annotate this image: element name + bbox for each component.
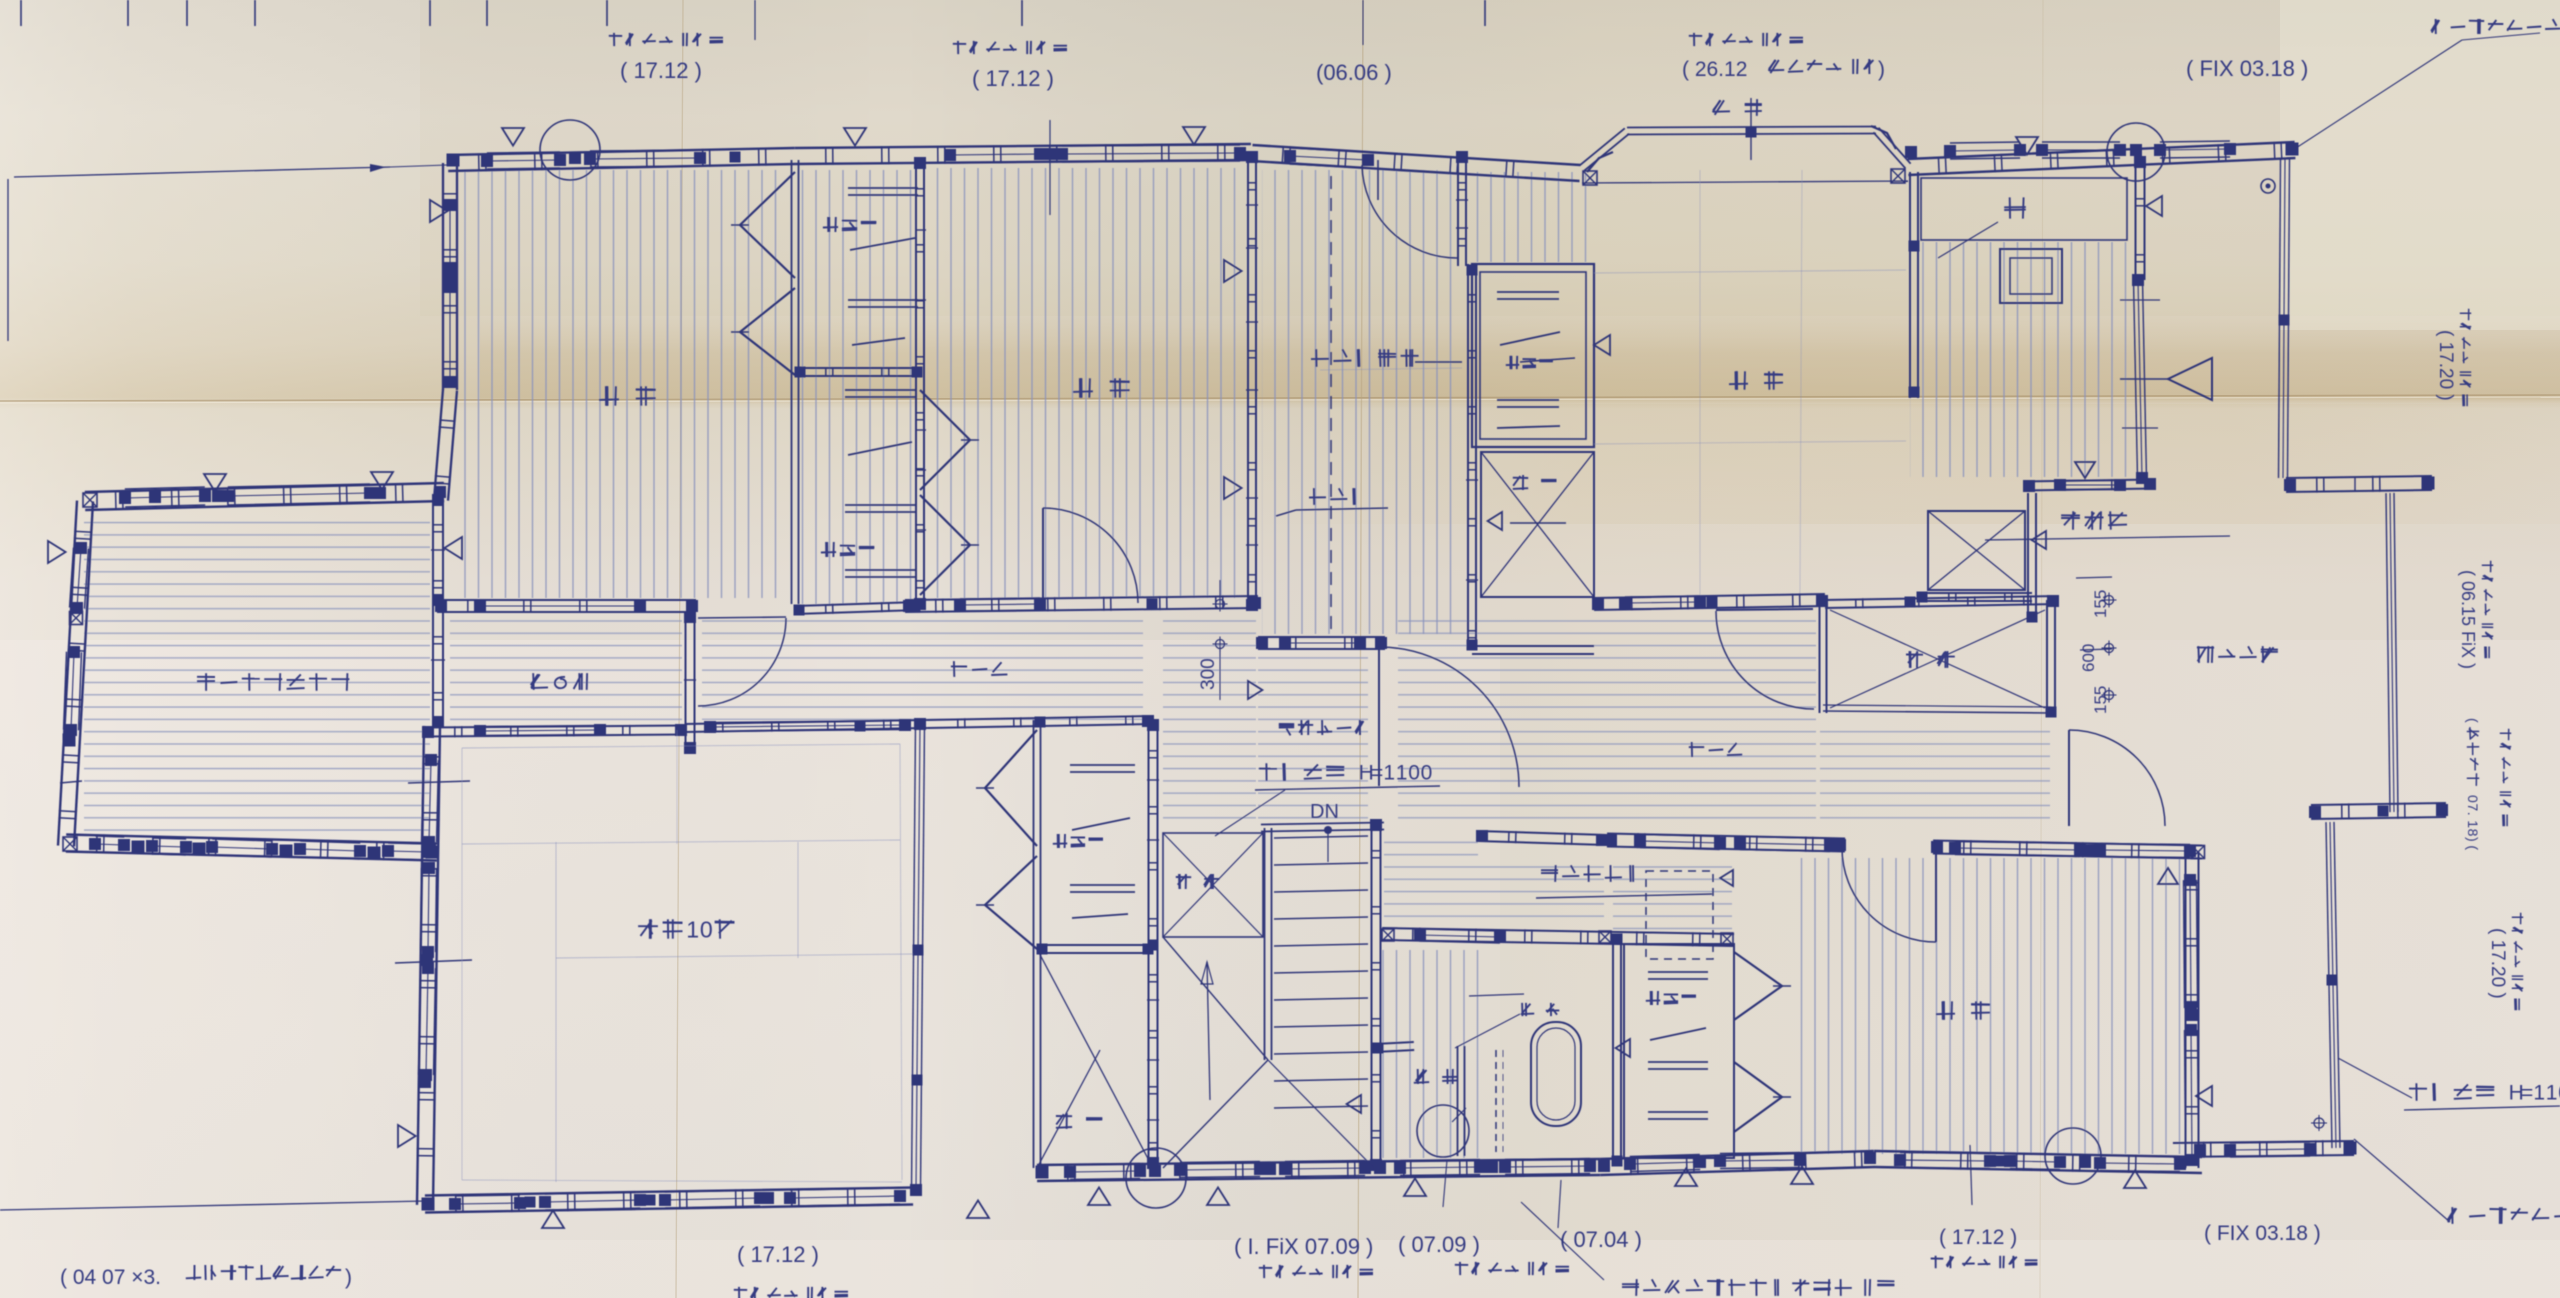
svg-text:8: 8 <box>2465 829 2481 837</box>
svg-text:0: 0 <box>2465 795 2481 803</box>
svg-text:( 26.12: ( 26.12 <box>1682 58 1747 81</box>
svg-text:=: = <box>1371 762 1383 785</box>
svg-text:( FIX 03.18 ): ( FIX 03.18 ) <box>2186 56 2308 81</box>
svg-text:( I. FiX 07.09 ): ( I. FiX 07.09 ) <box>1234 1234 1373 1259</box>
svg-text:( 17.12 ): ( 17.12 ) <box>1939 1226 2017 1249</box>
svg-text:( 17.12 ): ( 17.12 ) <box>972 66 1054 91</box>
svg-text:(06.06 ): (06.06 ) <box>1316 60 1392 85</box>
svg-text:1: 1 <box>2465 820 2481 828</box>
svg-text:.: . <box>2465 812 2481 816</box>
svg-text:7: 7 <box>2465 803 2481 811</box>
svg-text:): ) <box>2465 837 2481 842</box>
svg-text:(: ( <box>2465 718 2481 723</box>
svg-text:0: 0 <box>1408 762 1420 785</box>
svg-text:1: 1 <box>686 916 699 942</box>
svg-text:( FIX 03.18 ): ( FIX 03.18 ) <box>2204 1222 2321 1245</box>
svg-text:): ) <box>1878 58 1885 81</box>
svg-text:1: 1 <box>1396 762 1408 785</box>
svg-text:300: 300 <box>1198 658 1219 690</box>
svg-text:(: ( <box>2465 845 2481 850</box>
svg-text:1: 1 <box>2533 1082 2545 1105</box>
svg-text:600: 600 <box>2079 644 2098 672</box>
svg-text:1: 1 <box>2546 1082 2558 1105</box>
svg-text:( 06.15 FiX ): ( 06.15 FiX ) <box>2458 570 2478 669</box>
svg-text:( 04 07 ×3.: ( 04 07 ×3. <box>60 1266 161 1289</box>
svg-text:( 17.12 ): ( 17.12 ) <box>620 58 702 83</box>
svg-text:155: 155 <box>2091 686 2110 714</box>
svg-text:( 17.20 ): ( 17.20 ) <box>2435 330 2456 401</box>
svg-text:( 17.20 ): ( 17.20 ) <box>2487 928 2508 999</box>
svg-text:( 07.04 ): ( 07.04 ) <box>1560 1227 1642 1252</box>
svg-text:1: 1 <box>1383 762 1395 785</box>
svg-text:0: 0 <box>700 916 713 942</box>
svg-text:DN: DN <box>1310 801 1339 823</box>
svg-text:0: 0 <box>1421 762 1433 785</box>
svg-text:( 17.12 ): ( 17.12 ) <box>737 1242 819 1267</box>
svg-text:=: = <box>2521 1082 2533 1105</box>
svg-text:( 07.09 ): ( 07.09 ) <box>1398 1232 1480 1257</box>
svg-text:): ) <box>345 1266 352 1289</box>
